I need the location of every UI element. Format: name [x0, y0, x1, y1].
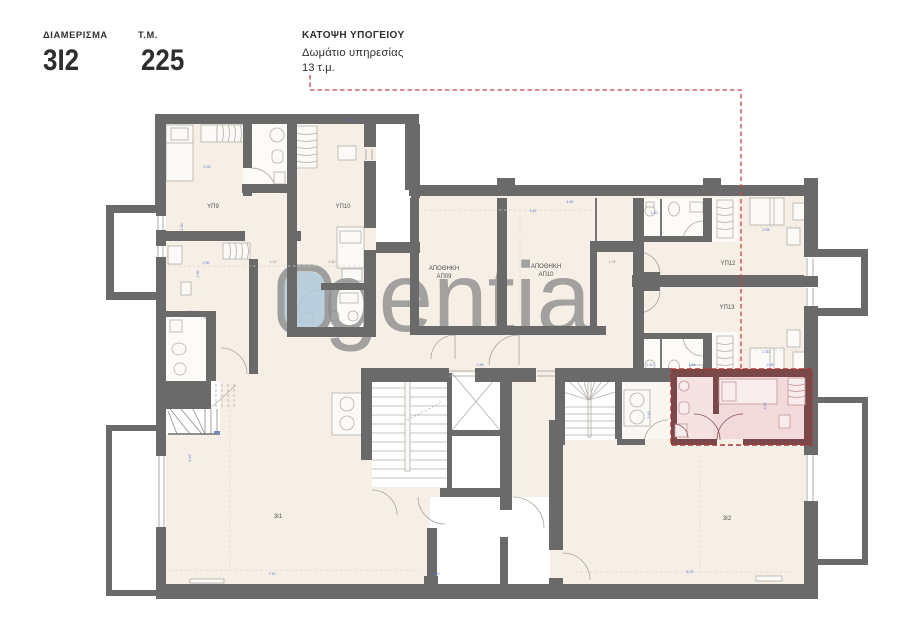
- svg-text:ΥΠ9: ΥΠ9: [207, 204, 219, 210]
- svg-text:13 τ.μ.: 13 τ.μ.: [302, 62, 335, 74]
- svg-text:1.75: 1.75: [609, 260, 616, 264]
- svg-text:ΥΠ10: ΥΠ10: [335, 204, 351, 210]
- svg-text:Τ.Μ.: Τ.Μ.: [138, 30, 158, 40]
- svg-text:2.90: 2.90: [203, 261, 210, 265]
- svg-text:3Ι1: 3Ι1: [274, 514, 283, 520]
- svg-text:6.40: 6.40: [188, 455, 192, 462]
- svg-text:ΥΠ13: ΥΠ13: [719, 305, 735, 311]
- svg-text:ΑΠΟΘΗΚΗ: ΑΠΟΘΗΚΗ: [531, 264, 561, 270]
- svg-text:225: 225: [141, 43, 184, 76]
- svg-text:2.90: 2.90: [204, 165, 211, 169]
- svg-text:1.40: 1.40: [647, 363, 654, 367]
- svg-text:3.40: 3.40: [647, 412, 651, 419]
- svg-text:2.40: 2.40: [763, 403, 767, 410]
- svg-text:2.30: 2.30: [196, 271, 200, 278]
- svg-text:ΑΠΟΘΗΚΗ: ΑΠΟΘΗΚΗ: [429, 266, 459, 272]
- svg-text:ΑΠ09: ΑΠ09: [436, 274, 452, 280]
- svg-text:3.42: 3.42: [530, 209, 537, 213]
- svg-text:1.96: 1.96: [477, 363, 484, 367]
- svg-text:2.30: 2.30: [180, 224, 184, 231]
- svg-text:Δωμάτιο υπηρεσίας: Δωμάτιο υπηρεσίας: [302, 47, 404, 59]
- svg-text:1.40: 1.40: [651, 211, 658, 215]
- svg-text:7.10: 7.10: [269, 572, 276, 576]
- svg-text:2.30: 2.30: [763, 350, 770, 354]
- svg-text:2.40: 2.40: [329, 260, 336, 264]
- svg-text:3Ι2: 3Ι2: [43, 43, 79, 76]
- svg-text:1.45: 1.45: [347, 118, 354, 122]
- svg-text:1.10: 1.10: [270, 260, 277, 264]
- svg-text:2.05: 2.05: [763, 228, 770, 232]
- svg-text:4.50: 4.50: [567, 200, 574, 204]
- svg-text:3Ι2: 3Ι2: [723, 516, 732, 522]
- svg-text:ΚΑΤΟΨΗ ΥΠΟΓΕΙΟΥ: ΚΑΤΟΨΗ ΥΠΟΓΕΙΟΥ: [302, 30, 405, 41]
- svg-text:ΔΙΑΜΕΡΙΣΜΑ: ΔΙΑΜΕΡΙΣΜΑ: [43, 30, 108, 40]
- svg-text:2.05: 2.05: [767, 363, 774, 367]
- svg-text:ΥΠ12: ΥΠ12: [720, 261, 736, 267]
- svg-text:ΑΠ10: ΑΠ10: [538, 272, 554, 278]
- svg-text:8.75: 8.75: [687, 570, 694, 574]
- svg-text:4.60: 4.60: [433, 572, 440, 576]
- svg-text:1.48: 1.48: [689, 363, 696, 367]
